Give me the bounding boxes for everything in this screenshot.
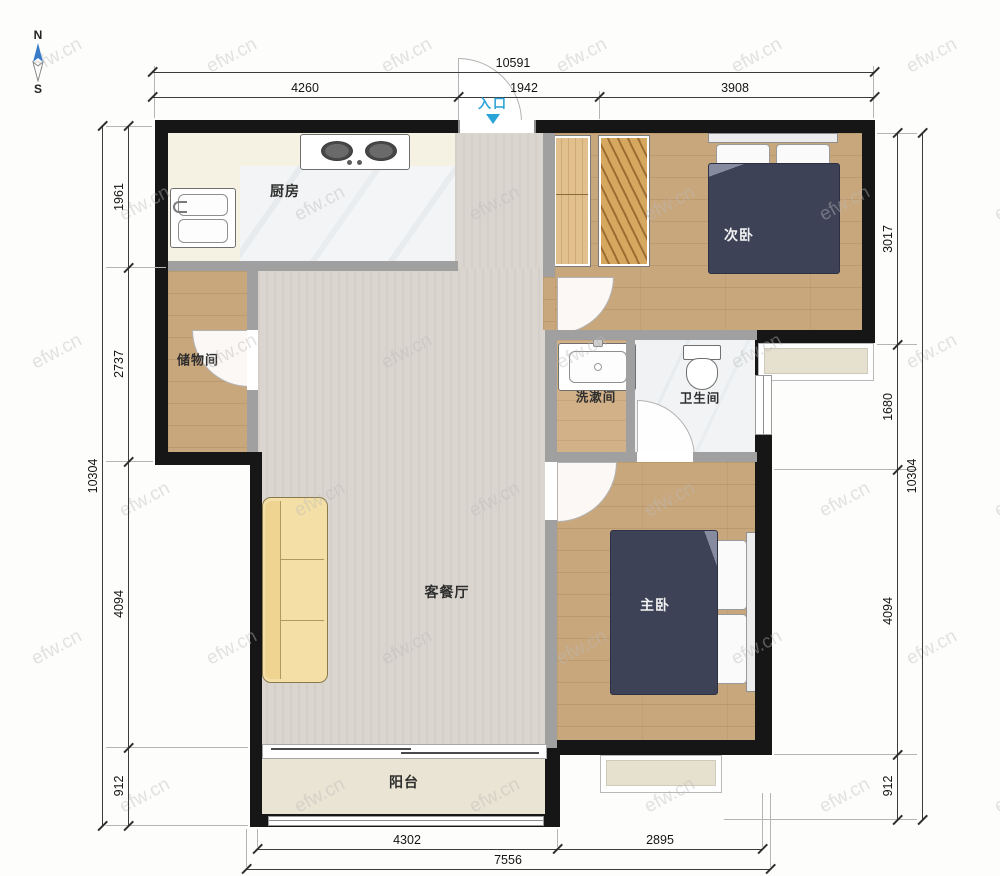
dim-line [102,126,103,826]
watermark-text: efw.cn [28,626,86,671]
dim-label-bottom-0: 4302 [393,833,421,847]
sofa-icon [262,497,328,683]
bed-duvet [708,163,840,274]
bedroom1-bed [610,530,756,693]
dim-line [128,126,129,826]
kitchen-sink-icon [170,188,236,248]
extension-line [762,793,763,847]
exterior-wall-bedroom1-bottom [545,740,772,755]
watermark-text: efw.cn [28,330,86,375]
dim-label-left-0: 1961 [112,183,126,211]
watermark-text: efw.cn [903,330,961,375]
sofa-cushion-divider [280,559,324,560]
dim-label-top-1: 1942 [510,81,538,95]
bedroom2-label: 次卧 [724,225,754,245]
extension-line [557,829,558,847]
watermark-text: efw.cn [903,626,961,671]
stove-burner-icon [365,141,397,161]
exterior-wall-step [155,452,262,465]
balcony-sliding-door [262,744,547,759]
bedroom1-door-opening [545,462,557,520]
stove-icon [300,134,410,170]
extension-line [246,829,247,867]
interior-wall-bath-block-top [545,330,757,340]
watermark-text: efw.cn [991,478,1000,523]
toilet-bowl [686,358,718,390]
dim-label-top-0: 4260 [291,81,319,95]
washbasin-icon [558,343,636,391]
floorplan-canvas: 厨房 储物间 客餐厅 阳台 次卧 主卧 洗漱间 卫生间 N S 入口 10591… [0,0,1000,876]
watermark-text: efw.cn [903,34,961,79]
dim-label-left-total: 10304 [86,459,100,494]
compass-icon: N S [26,28,50,96]
watermark-text: efw.cn [116,478,174,523]
entrance-label: 入口 [467,93,519,112]
toilet-icon [683,345,721,391]
bed-pillow-icon [713,540,747,610]
dim-label-right-2: 4094 [881,597,895,625]
watermark-text: efw.cn [816,478,874,523]
interior-wall-hall-east [543,133,555,277]
bedroom2-bed [708,133,838,272]
dim-label-right-0: 3017 [881,225,895,253]
extension-line [257,829,258,847]
living-label: 客餐厅 [425,582,470,602]
dim-label-top-2: 3908 [721,81,749,95]
watermark-text: efw.cn [816,774,874,819]
stove-knob-icon [357,160,362,165]
bed-headboard [708,133,838,143]
exterior-wall-right-top [862,120,875,343]
sofa-back [265,501,281,679]
dim-label-bottom-total: 7556 [494,853,522,867]
washbasin-drain [594,363,602,371]
sink-basin-icon [178,219,228,243]
dim-label-left-1: 2737 [112,350,126,378]
stove-knob-icon [347,160,352,165]
interior-wall-kitchen-bottom [168,261,458,271]
compass-needle-icon [30,42,46,82]
interior-wall-washroom-west [545,330,557,462]
washroom-label: 洗漱间 [576,387,617,406]
dim-line [257,849,762,850]
dim-line [897,133,898,820]
sofa-cushion-divider [280,620,324,621]
balcony-window [268,816,544,826]
bedroom2-bay-window [758,343,874,381]
dim-line [922,133,923,820]
dim-label-right-1: 1680 [881,393,895,421]
dim-label-bottom-1: 2895 [646,833,674,847]
balcony-label: 阳台 [389,772,419,792]
exterior-wall-left [155,120,168,452]
compass-north-label: N [34,28,43,42]
interior-wall-wash-bath-divider [626,340,635,452]
window-mullion [269,820,543,821]
exterior-wall-bedroom2-bottom [755,330,875,343]
storage-door-opening [247,330,258,390]
extension-line [770,793,771,867]
stove-burner-icon [321,141,353,161]
bedroom2-door-floor [543,277,555,330]
dim-line [246,869,770,870]
extension-line [724,819,917,820]
kitchen-label: 厨房 [270,181,300,201]
entrance-marker: 入口 [467,93,519,124]
exterior-wall-left-lower [250,452,262,827]
dim-label-top-total: 10591 [496,56,531,70]
sliding-panel [271,748,411,750]
bay-window-sill [606,760,716,786]
bedroom1-bay-window [600,755,722,793]
watermark-text: efw.cn [991,774,1000,819]
extension-line [106,267,166,268]
dim-label-right-3: 912 [881,776,895,797]
dim-label-left-3: 912 [112,776,126,797]
bathroom-door-opening [637,452,693,462]
compass-south-label: S [34,82,42,96]
wardrobe-icon [598,135,650,267]
bedroom1-label: 主卧 [640,595,670,615]
dim-label-right-total: 10304 [905,459,919,494]
bed-pillow-icon [713,614,747,684]
storage-label: 储物间 [177,350,219,369]
dim-line [152,72,874,73]
entrance-arrow-icon [486,114,500,124]
cabinet-icon [553,135,591,267]
bay-window-sill [764,348,868,374]
window-mullion [763,376,764,434]
cabinet-divider [556,194,588,195]
sink-faucet-icon [173,201,187,213]
bathroom-label: 卫生间 [680,388,721,407]
sliding-panel [401,752,539,754]
dim-label-left-2: 4094 [112,590,126,618]
corridor-window [755,375,772,435]
watermark-text: efw.cn [991,182,1000,227]
